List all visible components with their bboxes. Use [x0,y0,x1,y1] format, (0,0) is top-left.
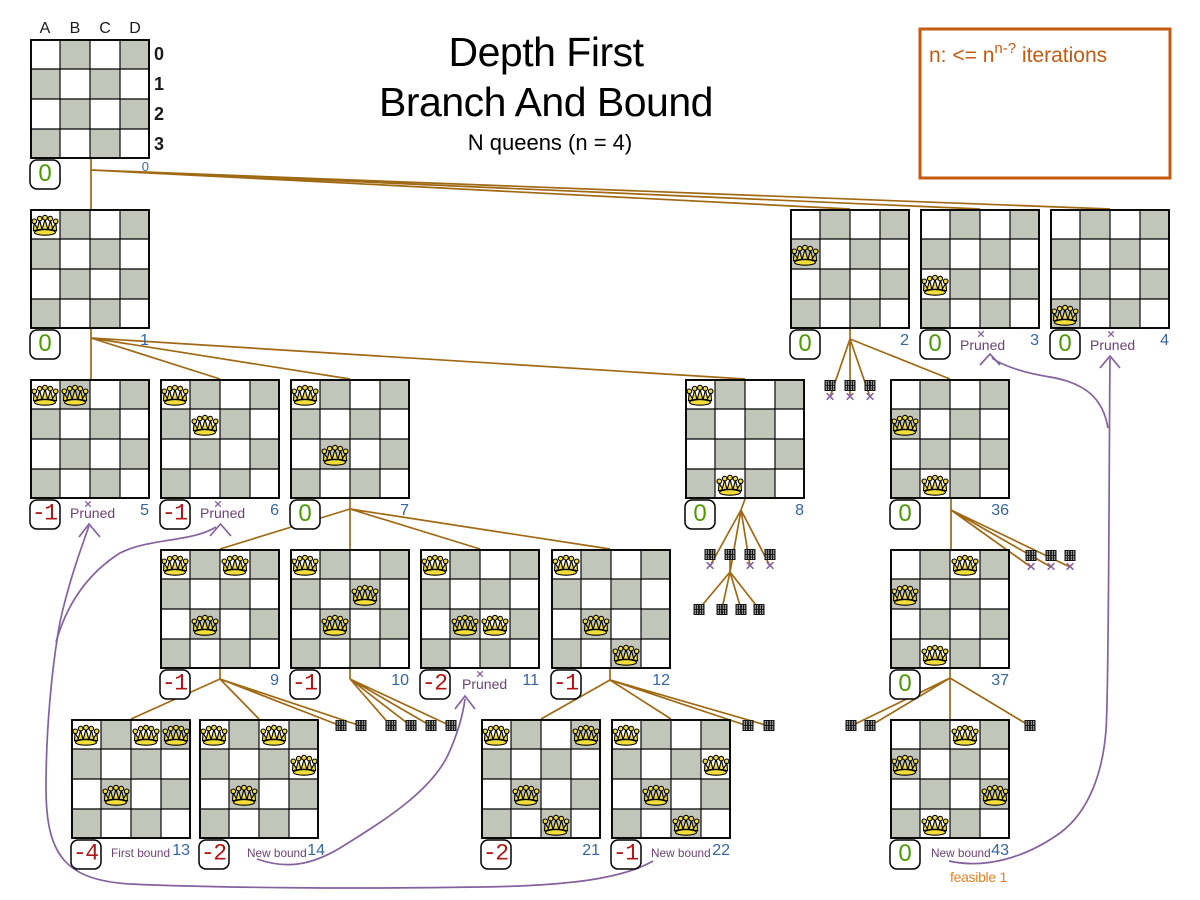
svg-text:3: 3 [1030,332,1039,349]
svg-text:-1: -1 [162,501,187,527]
svg-text:C: C [99,20,111,37]
svg-text:-2: -2 [483,841,508,867]
svg-text:0: 0 [38,160,51,187]
svg-text:43: 43 [991,842,1009,859]
svg-text:36: 36 [991,502,1009,519]
svg-text:Pruned: Pruned [200,505,245,521]
svg-text:-2: -2 [201,841,226,867]
svg-text:7: 7 [400,502,409,519]
svg-text:New bound: New bound [247,846,307,860]
svg-text:9: 9 [270,672,279,689]
svg-text:8: 8 [795,502,804,519]
svg-text:0: 0 [928,330,941,357]
svg-text:-4: -4 [73,841,98,867]
svg-text:37: 37 [991,672,1009,689]
svg-text:0: 0 [693,500,706,527]
svg-text:2: 2 [900,332,909,349]
svg-text:0: 0 [898,670,911,697]
svg-text:11: 11 [522,672,539,689]
svg-text:0: 0 [154,44,164,64]
svg-text:New bound: New bound [651,846,711,860]
svg-text:14: 14 [307,842,325,859]
svg-text:6: 6 [270,502,279,519]
svg-text:0: 0 [898,840,911,867]
svg-text:0: 0 [298,500,311,527]
svg-text:First bound: First bound [111,846,170,860]
svg-text:N queens (n = 4): N queens (n = 4) [468,130,632,155]
svg-text:Pruned: Pruned [70,505,115,521]
svg-text:D: D [129,20,141,37]
svg-text:0: 0 [798,330,811,357]
svg-text:0: 0 [1058,330,1071,357]
svg-text:2: 2 [154,104,164,124]
svg-text:-1: -1 [613,841,638,867]
svg-text:0: 0 [142,159,149,174]
svg-text:10: 10 [391,672,409,689]
svg-text:B: B [70,20,81,37]
svg-text:-1: -1 [553,671,578,697]
svg-text:Branch And Bound: Branch And Bound [379,79,713,125]
svg-text:-1: -1 [32,501,57,527]
svg-text:-1: -1 [292,671,317,697]
svg-text:Pruned: Pruned [462,676,507,692]
svg-text:13: 13 [172,842,190,859]
svg-text:feasible 1: feasible 1 [950,869,1007,885]
svg-text:22: 22 [712,842,730,859]
svg-text:-1: -1 [162,671,187,697]
svg-text:0: 0 [898,500,911,527]
svg-text:Pruned: Pruned [960,337,1005,353]
svg-text:New bound: New bound [931,846,991,860]
svg-text:4: 4 [1160,332,1169,349]
svg-text:Pruned: Pruned [1090,337,1135,353]
svg-text:21: 21 [582,842,600,859]
svg-text:0: 0 [38,330,51,357]
svg-text:1: 1 [154,74,164,94]
svg-text:-2: -2 [422,671,447,697]
svg-text:12: 12 [652,672,670,689]
svg-text:1: 1 [140,332,149,349]
svg-text:n: <= nn-? iterations: n: <= nn-? iterations [929,40,1107,67]
svg-text:Depth First: Depth First [449,29,645,75]
svg-text:A: A [40,20,51,37]
svg-text:3: 3 [154,134,164,154]
svg-text:5: 5 [140,502,149,519]
